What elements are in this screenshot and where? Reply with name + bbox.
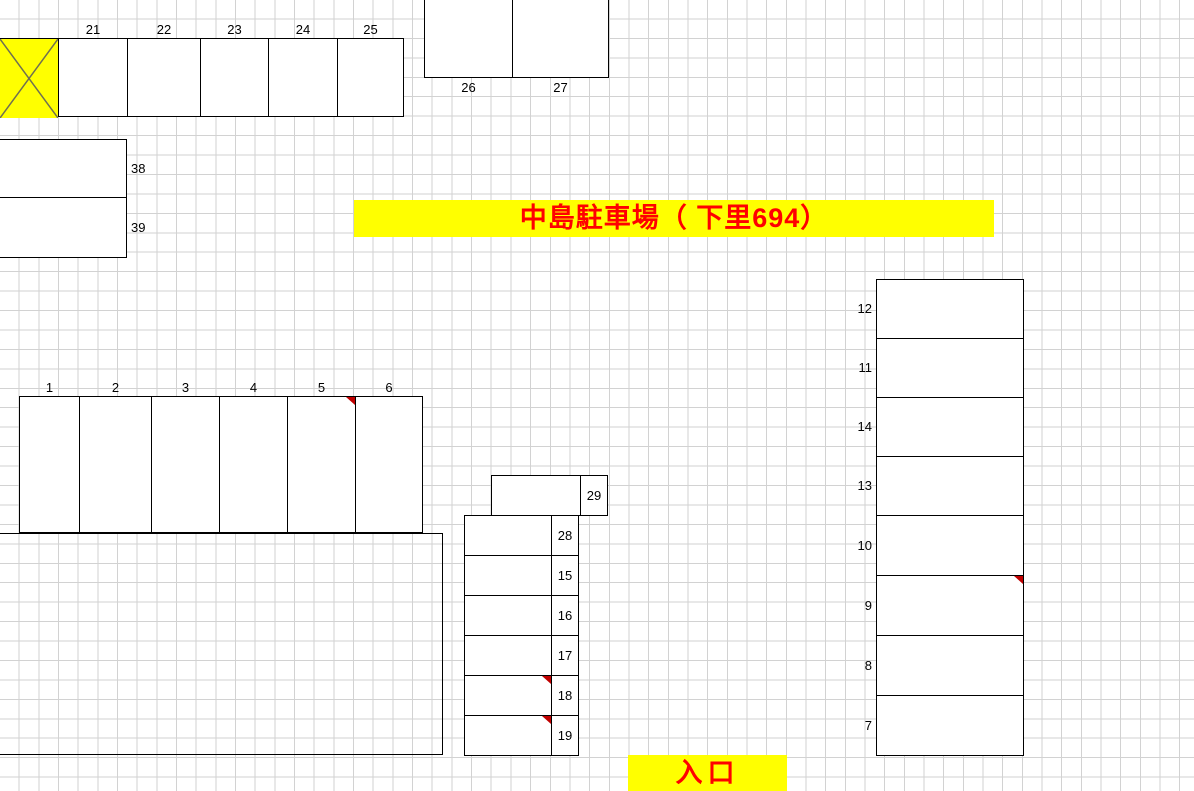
parking-spot-cell [876,397,1024,457]
blocked-spot-cell [0,38,58,118]
parking-spot-cell [268,38,338,117]
parking-spot-cell [58,38,128,117]
parking-spot-cell [464,715,552,756]
parking-spot-label: 7 [832,695,872,756]
parking-spot-cell [0,139,127,198]
parking-spot-label: 39 [131,197,171,258]
parking-spot-label: 5 [287,380,356,395]
parking-spot-label: 12 [832,279,872,339]
parking-spot-cell [287,396,356,533]
parking-spot-cell [79,396,152,533]
parking-spot-label: 26 [424,80,513,95]
parking-spot-cell [876,338,1024,398]
parking-spot-cell [876,635,1024,696]
parking-spot-cell [127,38,201,117]
parking-spot-cell [464,595,552,636]
parking-spot-cell [355,396,423,533]
parking-spot-label-cell: 28 [551,515,579,556]
parking-spot-label: 1 [19,380,80,395]
parking-spot-label: 24 [268,22,338,37]
parking-spot-cell [464,635,552,676]
parking-spot-label-cell: 15 [551,555,579,596]
note-marker-icon [542,676,551,684]
parking-spot-cell [151,396,220,533]
parking-spot-cell [491,475,581,516]
parking-spot-cell [464,675,552,716]
parking-spot-cell [200,38,269,117]
parking-spot-cell [464,515,552,556]
x-cross-icon [0,39,58,118]
note-marker-icon [1014,576,1023,584]
parking-spot-label: 23 [200,22,269,37]
parking-spot-cell [19,396,80,533]
parking-spot-label: 2 [79,380,152,395]
lot-boundary-line [0,533,443,755]
parking-spot-label: 13 [832,456,872,516]
parking-spot-cell [424,0,513,78]
parking-spot-cell [876,515,1024,576]
parking-spot-cell [219,396,288,533]
parking-spot-cell [876,279,1024,339]
parking-spot-label: 8 [832,635,872,696]
parking-spot-label: 10 [832,515,872,576]
parking-spot-cell [464,555,552,596]
parking-spot-label: 21 [58,22,128,37]
parking-spot-label-cell: 29 [580,475,608,516]
parking-spot-label: 14 [832,397,872,457]
parking-spot-cell [876,575,1024,636]
parking-spot-label: 4 [219,380,288,395]
parking-spot-label: 22 [127,22,201,37]
parking-spot-label-cell: 17 [551,635,579,676]
parking-map-canvas: 2122232425262712345638391211141310987292… [0,0,1194,791]
parking-spot-label: 6 [355,380,423,395]
parking-spot-label: 38 [131,139,171,198]
parking-spot-cell [876,695,1024,756]
title-banner: 中島駐車場（ 下里694） [354,200,994,237]
parking-spot-label: 11 [832,338,872,398]
parking-spot-cell [0,197,127,258]
parking-spot-label: 25 [337,22,404,37]
parking-spot-label: 9 [832,575,872,636]
parking-spot-label-cell: 16 [551,595,579,636]
entrance-banner: 入口 [628,755,787,791]
parking-spot-cell [876,456,1024,516]
parking-spot-cell [512,0,609,78]
parking-spot-cell [337,38,404,117]
parking-spot-label: 27 [512,80,609,95]
note-marker-icon [542,716,551,724]
parking-spot-label-cell: 19 [551,715,579,756]
parking-spot-label-cell: 18 [551,675,579,716]
note-marker-icon [346,397,355,405]
parking-spot-label: 3 [151,380,220,395]
